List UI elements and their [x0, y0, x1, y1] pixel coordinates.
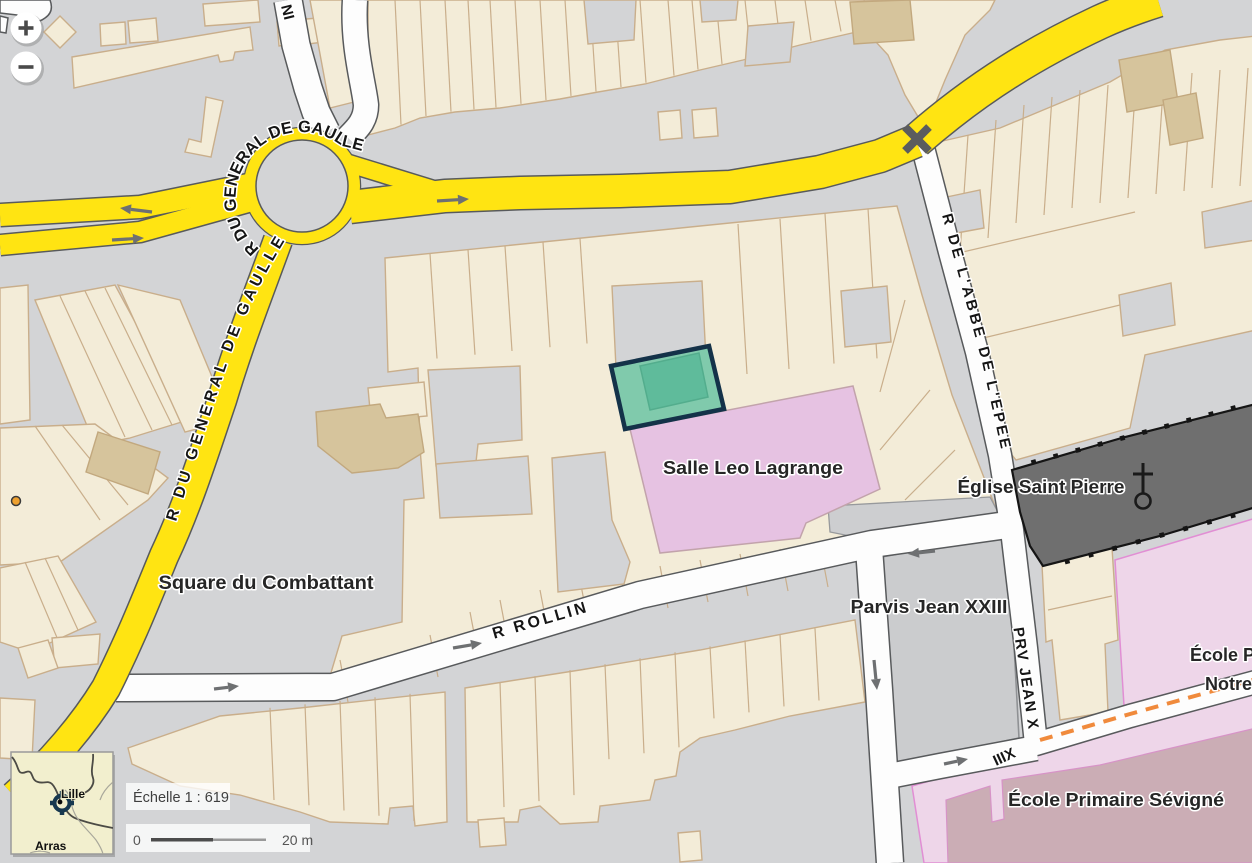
svg-text:Notre: Notre [1205, 674, 1252, 694]
svg-text:20 m: 20 m [282, 832, 313, 848]
svg-text:Square du Combattant: Square du Combattant [159, 573, 375, 594]
svg-text:Salle Leo Lagrange: Salle Leo Lagrange [663, 458, 843, 478]
svg-text:École Pr: École Pr [1190, 644, 1252, 665]
svg-text:Parvis Jean XXIII: Parvis Jean XXIII [851, 597, 1008, 617]
svg-text:École Primaire Sévigné: École Primaire Sévigné [1008, 789, 1224, 810]
svg-text:Lille: Lille [61, 787, 85, 801]
svg-text:0: 0 [133, 832, 141, 848]
svg-text:Échelle 1 : 619: Échelle 1 : 619 [133, 789, 229, 806]
svg-text:Arras: Arras [35, 839, 67, 853]
svg-text:Église Saint Pierre: Église Saint Pierre [958, 476, 1125, 497]
